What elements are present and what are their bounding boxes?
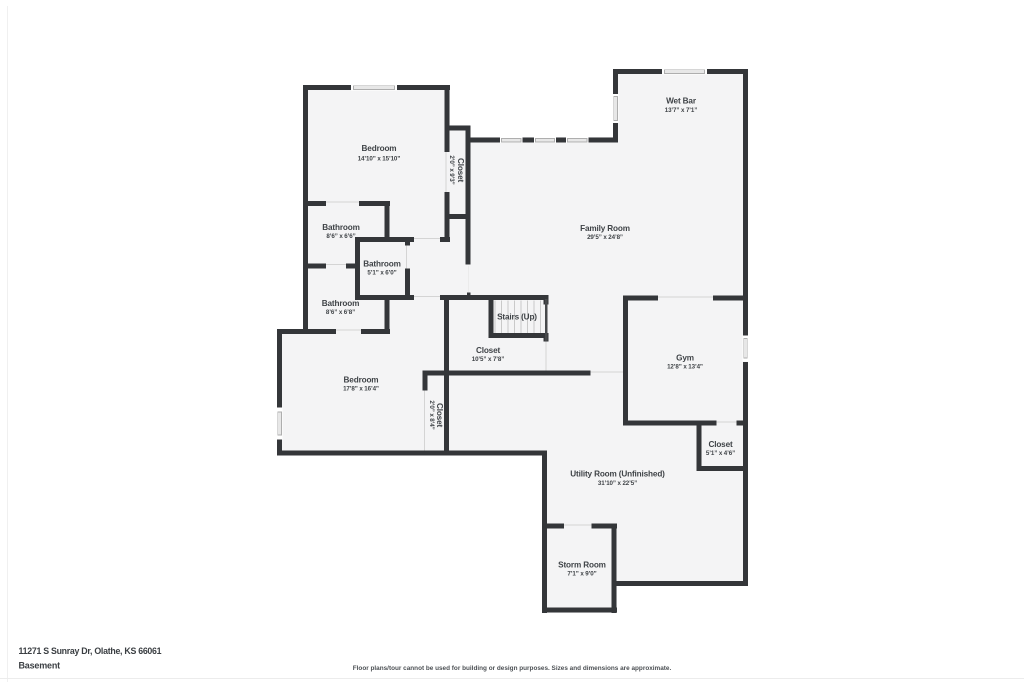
svg-text:8’6” x 6’6”: 8’6” x 6’6”	[326, 233, 355, 240]
svg-text:Closet: Closet	[708, 440, 733, 449]
svg-text:5’1” x 4’6”: 5’1” x 4’6”	[706, 450, 735, 457]
svg-text:14’10” x 15’10”: 14’10” x 15’10”	[358, 156, 401, 163]
svg-text:12’8” x 13’4”: 12’8” x 13’4”	[667, 364, 703, 371]
svg-text:2’0” x 8’4”: 2’0” x 8’4”	[428, 400, 435, 429]
svg-text:Floor plans/tour cannot be use: Floor plans/tour cannot be used for buil…	[353, 665, 672, 672]
svg-text:Storm Room: Storm Room	[558, 561, 606, 570]
svg-text:17’8” x 16’4”: 17’8” x 16’4”	[343, 386, 379, 393]
svg-text:10’5” x 7’8”: 10’5” x 7’8”	[472, 356, 505, 363]
svg-text:Closet: Closet	[456, 158, 465, 183]
svg-text:Closet: Closet	[476, 346, 501, 355]
svg-text:Stairs (Up): Stairs (Up)	[497, 313, 537, 322]
svg-text:Wet Bar: Wet Bar	[666, 97, 697, 106]
svg-text:2’0” x 9’3”: 2’0” x 9’3”	[448, 155, 455, 184]
svg-text:Bedroom: Bedroom	[362, 144, 397, 153]
svg-text:Utility Room (Unfinished): Utility Room (Unfinished)	[570, 470, 665, 479]
svg-text:Basement: Basement	[19, 661, 61, 671]
svg-text:8’6” x 6’8”: 8’6” x 6’8”	[326, 309, 355, 316]
svg-text:Bathroom: Bathroom	[322, 299, 359, 308]
svg-text:11271 S Sunray Dr, Olathe, KS: 11271 S Sunray Dr, Olathe, KS 66061	[19, 646, 162, 656]
svg-text:29’5” x 24’8”: 29’5” x 24’8”	[587, 234, 623, 241]
svg-text:13’7” x 7’1”: 13’7” x 7’1”	[665, 107, 698, 114]
svg-text:7’1” x 9’0”: 7’1” x 9’0”	[567, 571, 596, 578]
svg-text:Bathroom: Bathroom	[363, 260, 400, 269]
svg-text:Closet: Closet	[435, 403, 444, 428]
svg-text:Bathroom: Bathroom	[322, 223, 359, 232]
svg-text:5’1” x 6’0”: 5’1” x 6’0”	[367, 270, 396, 277]
svg-text:31’10” x 22’5”: 31’10” x 22’5”	[598, 480, 637, 487]
svg-text:Gym: Gym	[676, 354, 694, 363]
svg-text:Family Room: Family Room	[580, 224, 630, 233]
svg-text:Bedroom: Bedroom	[344, 376, 379, 385]
